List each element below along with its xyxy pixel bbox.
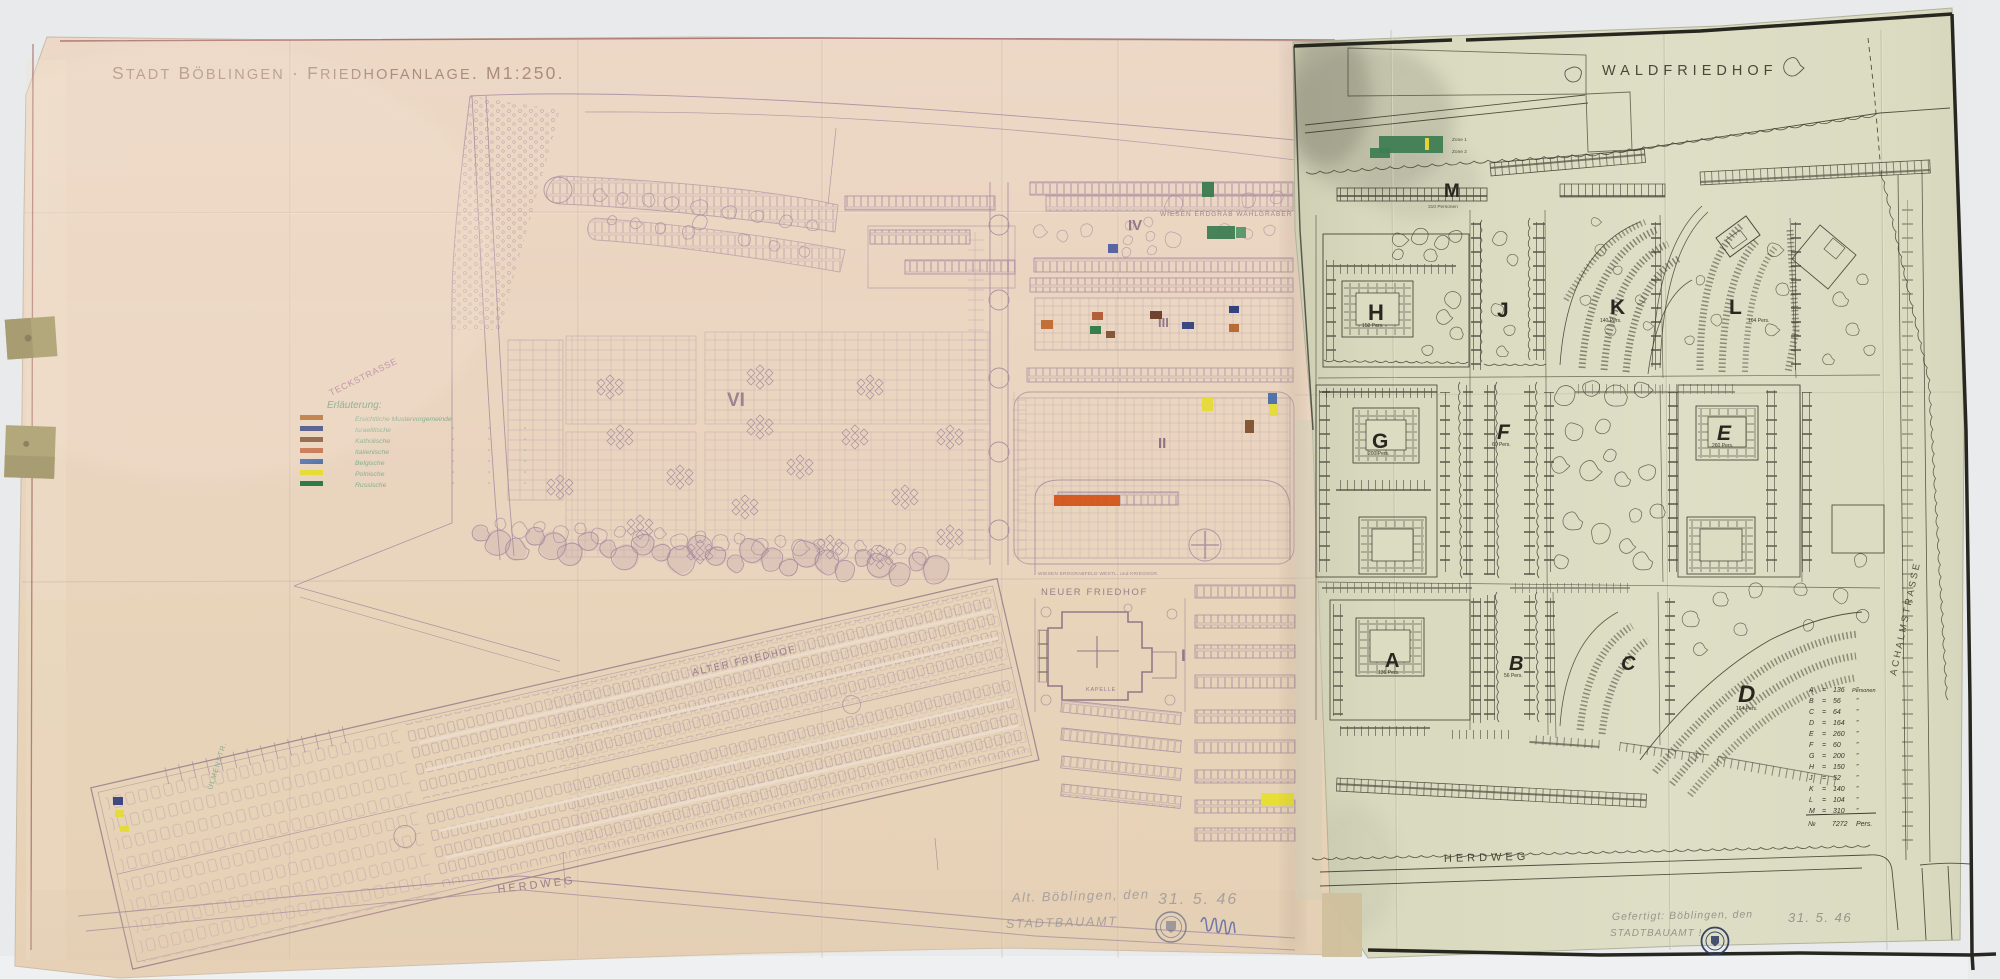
svg-text:136: 136	[1833, 687, 1845, 694]
svg-text:200 Pers.: 200 Pers.	[1368, 451, 1389, 457]
svg-text:K: K	[1610, 296, 1625, 319]
svg-text:140: 140	[1833, 786, 1845, 793]
svg-text:II: II	[1158, 435, 1166, 452]
svg-text:164: 164	[1833, 720, 1845, 727]
svg-text:52: 52	[1833, 775, 1841, 782]
svg-text:=: =	[1822, 709, 1826, 716]
svg-text:”: ”	[524, 482, 526, 489]
svg-text:M: M	[1444, 181, 1460, 202]
svg-text:E: E	[1809, 731, 1814, 738]
svg-text:164 Pers.: 164 Pers.	[1736, 706, 1757, 712]
svg-text:”: ”	[452, 460, 454, 467]
svg-text:104 Pers.: 104 Pers.	[1748, 318, 1769, 324]
svg-text:150 Pers.: 150 Pers.	[1362, 323, 1383, 329]
svg-text:Gefertigt: Böblingen, den: Gefertigt: Böblingen, den	[1612, 909, 1753, 923]
svg-text:=: =	[1822, 786, 1826, 793]
svg-text:Polnische: Polnische	[355, 471, 385, 478]
svg-text:104: 104	[1833, 797, 1845, 804]
svg-text:B: B	[1809, 698, 1814, 705]
svg-text:Pers.: Pers.	[1856, 821, 1872, 828]
svg-text:”: ”	[524, 460, 526, 467]
svg-text:”: ”	[452, 449, 454, 456]
svg-text:J: J	[1497, 299, 1509, 322]
svg-text:310 Personen: 310 Personen	[1428, 204, 1458, 210]
svg-text:260: 260	[1832, 731, 1845, 738]
svg-text:=: =	[1822, 797, 1826, 804]
svg-text:Zone 1: Zone 1	[1452, 137, 1467, 143]
svg-text:60: 60	[1833, 742, 1841, 749]
svg-text:=: =	[1822, 753, 1826, 760]
svg-text:J: J	[1808, 775, 1813, 782]
svg-text:=: =	[1822, 698, 1826, 705]
svg-text:NEUER FRIEDHOF: NEUER FRIEDHOF	[1041, 587, 1148, 598]
svg-text:=: =	[1822, 720, 1826, 727]
svg-text:F: F	[1497, 421, 1511, 444]
svg-text:=: =	[1822, 742, 1826, 749]
svg-text:136 Pers.: 136 Pers.	[1378, 670, 1399, 676]
svg-text:L: L	[1729, 296, 1742, 319]
svg-text:A: A	[1808, 687, 1814, 694]
svg-text:”: ”	[452, 471, 454, 478]
svg-text:F: F	[1809, 742, 1814, 749]
svg-text:L: L	[1809, 797, 1813, 804]
svg-text:KAPELLE: KAPELLE	[1086, 687, 1116, 693]
svg-text:I: I	[1181, 646, 1186, 665]
svg-text:31. 5. 46: 31. 5. 46	[1788, 910, 1852, 925]
svg-text:Russische: Russische	[355, 482, 387, 489]
svg-text:VI: VI	[727, 390, 745, 411]
svg-text:=: =	[1822, 687, 1826, 694]
svg-text:Italienische: Italienische	[355, 449, 389, 456]
svg-text:”: ”	[524, 438, 526, 445]
svg-text:56 Pers.: 56 Pers.	[1504, 673, 1523, 679]
svg-text:200: 200	[1832, 753, 1845, 760]
svg-text:STADTBAUAMT !: STADTBAUAMT !	[1610, 928, 1702, 939]
svg-text:”: ”	[488, 482, 490, 489]
svg-text:”: ”	[452, 427, 454, 434]
svg-text:G: G	[1809, 753, 1815, 760]
svg-text:7272: 7272	[1832, 821, 1848, 828]
svg-text:60 Pers.: 60 Pers.	[1492, 442, 1511, 448]
svg-text:Belgische: Belgische	[355, 460, 385, 467]
svg-text:E: E	[1717, 422, 1732, 445]
svg-text:”: ”	[488, 460, 490, 467]
svg-text:D: D	[1809, 720, 1814, 727]
svg-text:C: C	[1621, 653, 1636, 675]
svg-text:Zone 2: Zone 2	[1452, 149, 1467, 155]
svg-text:64: 64	[1833, 709, 1841, 716]
svg-text:=: =	[1822, 775, 1826, 782]
svg-text:”: ”	[488, 471, 490, 478]
svg-text:IV: IV	[1128, 217, 1142, 234]
svg-text:M: M	[1809, 808, 1815, 815]
svg-text:G: G	[1372, 430, 1388, 453]
svg-text:=: =	[1822, 808, 1826, 815]
svg-text:”: ”	[524, 449, 526, 456]
svg-text:”: ”	[524, 471, 526, 478]
svg-text:D: D	[1738, 681, 1755, 708]
svg-text:H: H	[1368, 300, 1384, 325]
svg-text:56: 56	[1833, 698, 1841, 705]
svg-text:”: ”	[452, 438, 454, 445]
svg-text:№: №	[1808, 821, 1816, 828]
svg-text:WIESEN ERDGRABFELD WESTL. und: WIESEN ERDGRABFELD WESTL. und KRIEGSGR.	[1038, 571, 1159, 577]
svg-text:”: ”	[488, 438, 490, 445]
svg-text:Personen: Personen	[1852, 688, 1876, 694]
svg-text:HERDWEG: HERDWEG	[1444, 851, 1530, 865]
svg-text:150: 150	[1833, 764, 1845, 771]
svg-text:140 Pers.: 140 Pers.	[1600, 318, 1621, 324]
svg-text:260 Pers.: 260 Pers.	[1712, 443, 1733, 449]
svg-text:A: A	[1385, 650, 1399, 672]
svg-text:K: K	[1809, 786, 1814, 793]
svg-text:WALDFRIEDHOF: WALDFRIEDHOF	[1602, 63, 1777, 79]
svg-text:WIESEN ERDGRAB WAHLGRABER: WIESEN ERDGRAB WAHLGRABER	[1160, 211, 1292, 218]
svg-text:”: ”	[524, 427, 526, 434]
svg-text:”: ”	[488, 427, 490, 434]
svg-text:=: =	[1822, 764, 1826, 771]
svg-text:”: ”	[452, 482, 454, 489]
svg-text:=: =	[1822, 731, 1826, 738]
svg-text:”: ”	[488, 449, 490, 456]
svg-text:B: B	[1509, 653, 1523, 675]
